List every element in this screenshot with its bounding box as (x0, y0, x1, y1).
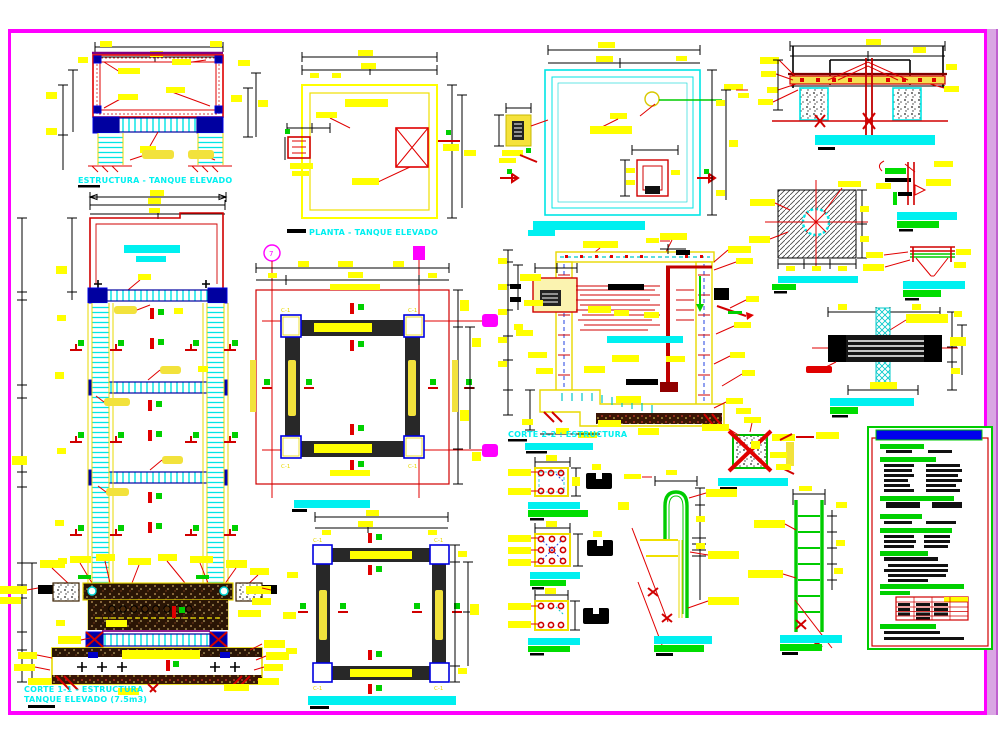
column-label: C-1 (434, 686, 443, 692)
panel-especificaciones (868, 427, 992, 649)
panel-corte-1-1: CORTE 1-1 - ESTRUCTURA TANQUE ELEVADO (7… (0, 198, 289, 708)
panel-detalle-apoyo-2 (863, 247, 971, 301)
panel-encofrado-2: C-1 C-1 C-1 C-1 (283, 500, 479, 709)
panel-detalle-escalera (748, 486, 847, 655)
column-label: C-1 (408, 308, 417, 314)
column-label: C-1 (408, 464, 417, 470)
cad-canvas: ESTRUCTURA - TANQUE ELEVADO PLANTA - TAN… (0, 0, 1000, 751)
column-label: C-1 (281, 464, 290, 470)
panel-corte-2-2: CORTE 2-2 : ESTRUCTURA (498, 230, 759, 454)
panel-detalle-anclaje (702, 417, 839, 490)
cad-drawing: ESTRUCTURA - TANQUE ELEVADO PLANTA - TAN… (0, 0, 1000, 751)
title-estructura-tanque: ESTRUCTURA - TANQUE ELEVADO (78, 176, 232, 185)
panel-seccion-techo (758, 39, 959, 150)
col-section-2 (508, 521, 613, 590)
panel-secciones-columna (508, 455, 629, 656)
column-label: C-1 (281, 308, 290, 314)
title-corte22: CORTE 2-2 : ESTRUCTURA (508, 430, 628, 439)
title-planta-tanque: PLANTA - TANQUE ELEVADO (309, 228, 438, 237)
column-label: C-1 (434, 538, 443, 544)
title-corte11-line2: TANQUE ELEVADO (7.5m3) (24, 695, 147, 704)
column-label: C-1 (313, 538, 322, 544)
grid-bubble-7: 7 (269, 250, 273, 258)
title-corte11-line1: CORTE 1-1 - ESTRUCTURA (24, 685, 144, 694)
panel-tank-section: ESTRUCTURA - TANQUE ELEVADO (46, 41, 268, 202)
panel-detalle-gancho (624, 470, 739, 656)
panel-seccion-viga (806, 304, 967, 418)
panel-pase-tuberia (749, 180, 869, 294)
col-section-1 (508, 455, 612, 521)
col-section-3 (508, 588, 609, 656)
foundation (0, 554, 289, 695)
panel-planta-tanque: PLANTA - TANQUE ELEVADO (285, 50, 476, 237)
panel-planta-techo (494, 42, 749, 243)
panel-detalle-apoyo-1 (876, 161, 957, 232)
column-label: C-1 (313, 686, 322, 692)
beam-1 (88, 288, 227, 303)
panel-encofrado-1: 7 C-1 C-1 C-1 C-1 (250, 245, 498, 498)
